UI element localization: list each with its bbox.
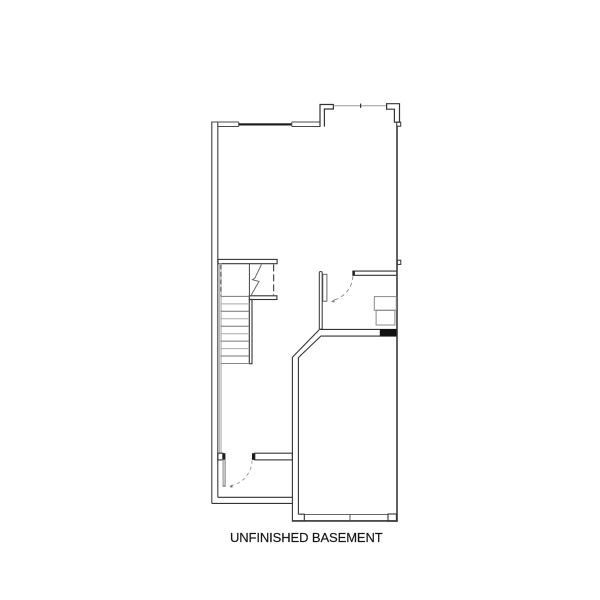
svg-text:UNFINISHED BASEMENT: UNFINISHED BASEMENT [230, 530, 383, 545]
